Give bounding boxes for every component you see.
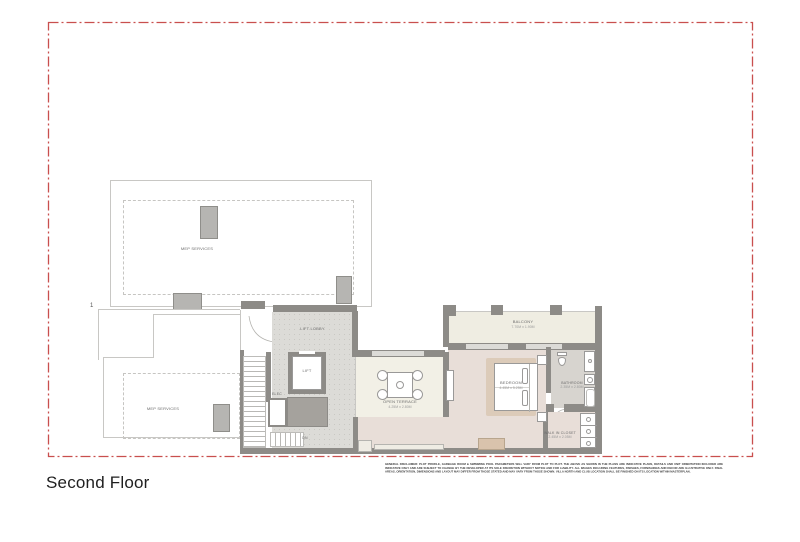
wall [546,404,554,412]
terrace-chair [412,370,423,381]
open-terrace-dimensions: 4.25M x 2.80M [368,406,432,410]
grid-marker: 1 [90,303,93,309]
bedroom-dimensions: 4.45M x 5.25M [488,387,534,391]
terrace-table-center [396,381,404,389]
bathroom-dimensions: 2.35M x 2.80M [549,386,595,390]
elec-label: ELEC [264,392,290,396]
balcony-pillar [443,305,456,316]
roof-outline [98,309,99,360]
roof-outline [103,357,104,437]
roof-outline [153,314,154,358]
wall [273,305,357,312]
terrace-chair [377,370,388,381]
service-shaft-block [287,397,328,427]
terrace-sliding-door-leaf [446,370,454,401]
hanger-rod [586,441,591,446]
disclaimer-text: GENERAL DISCLAIMER: PLOT PROFILE, GARBAG… [385,463,723,474]
plot-boundary-and-door-arcs [0,0,800,542]
hanger-rod [586,417,591,422]
wall [595,306,602,454]
balcony-edge-line [448,311,595,312]
wall [448,343,596,350]
shower [584,351,595,372]
elec-room [268,398,287,427]
wall [241,301,265,309]
balcony-pillar [550,305,562,315]
mep-equipment-block [200,206,218,239]
mep-equipment-block [173,293,202,310]
nightstand [537,355,547,365]
console [374,444,444,450]
pillow [522,390,528,406]
mep-equipment-block [336,276,352,304]
roof-outline [110,180,372,181]
toilet-tank [557,352,567,356]
lift-lobby-label: LIFT LOBBY [280,327,345,332]
balcony-dimensions: 7.70M x 1.90M [491,326,555,330]
stairs-dn-label: DN [298,436,312,440]
roof-outline [153,314,240,315]
mep-lower-label: MEP SERVICES [123,407,203,412]
nightstand [537,412,547,422]
vestibule-edge-line [240,310,241,350]
wall [356,350,445,357]
roof-outline [110,180,111,307]
walk-in-closet-dimensions: 2.45M x 2.05M [531,436,589,440]
window-sill [372,351,424,356]
bathtub-inner [586,389,595,407]
wardrobe-shelf [581,425,597,426]
bench [478,438,505,450]
roof-outline [98,309,240,310]
sofa [358,440,372,452]
window-sill [466,344,508,349]
staircase-upper-flight [243,356,266,448]
shower-drain [588,359,592,363]
floor-plan-page: MEP SERVICES 1 MEP SERVICES DN [0,0,800,542]
bathtub [584,387,595,407]
roof-outline [371,180,372,307]
mep-upper-label: MEP SERVICES [157,247,237,252]
lift-label: LIFT [292,369,322,374]
page-title: Second Floor [46,473,150,493]
mep-equipment-block [213,404,230,432]
lift-door-gap [299,351,315,354]
roof-outline [103,357,154,358]
balcony-pillar [491,305,503,315]
disclaimer-block: GENERAL DISCLAIMER: PLOT PROFILE, GARBAG… [385,463,723,489]
window-sill [526,344,562,349]
terrace-edge-line [355,357,356,417]
